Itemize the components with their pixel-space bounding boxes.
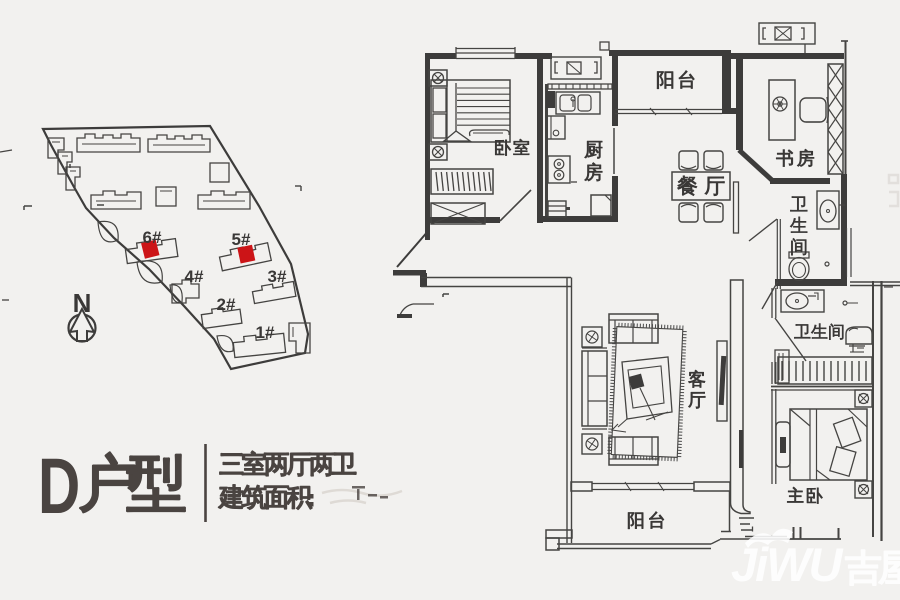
svg-text:D: D xyxy=(38,441,80,530)
svg-text:5#: 5# xyxy=(232,230,251,249)
svg-text:1#: 1# xyxy=(256,323,275,342)
svg-text:6#: 6# xyxy=(143,228,162,247)
svg-text:3#: 3# xyxy=(268,267,287,286)
svg-text:2#: 2# xyxy=(217,295,236,314)
svg-text:JiWU: JiWU xyxy=(731,538,844,591)
svg-text:4#: 4# xyxy=(185,267,204,286)
